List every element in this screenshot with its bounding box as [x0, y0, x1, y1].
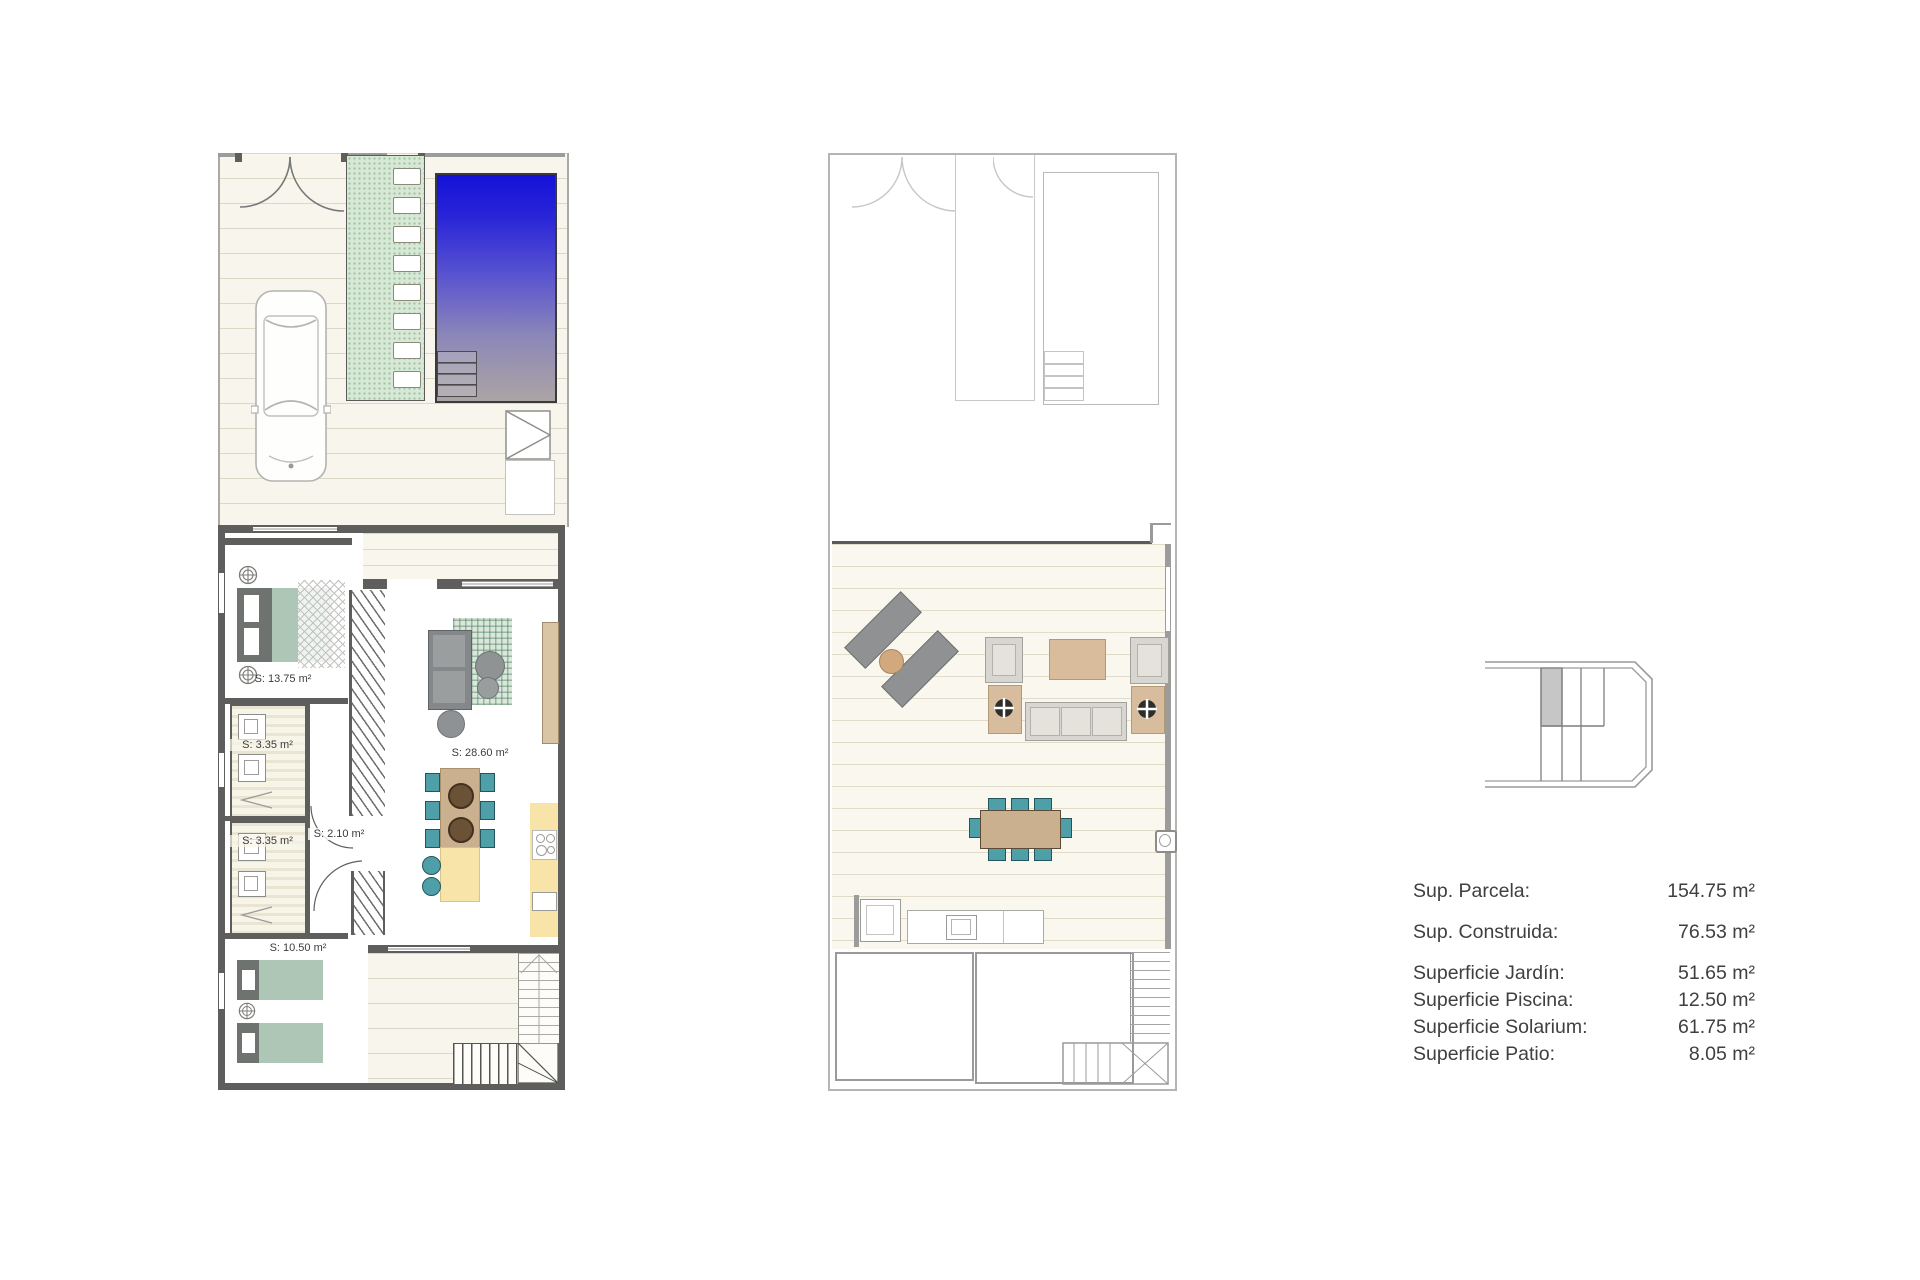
exterior-stairs-upper: [518, 953, 559, 1043]
kitchen-island: [440, 847, 480, 902]
stepping-stone: [393, 284, 421, 301]
bed-throw: [298, 580, 345, 668]
room-label: S: 3.35 m²: [230, 739, 305, 751]
legend-label: Sup. Construida:: [1413, 919, 1558, 946]
parasol-base-icon: [1137, 699, 1157, 719]
window-dash: [219, 753, 224, 787]
solarium-parapet-step: [1150, 523, 1153, 543]
legend: Sup. Parcela: 154.75 m² Sup. Construida:…: [1413, 878, 1755, 1068]
stair-section-diagram: [1485, 660, 1675, 790]
legend-row: Sup. Parcela: 154.75 m²: [1413, 878, 1755, 905]
stepping-stone: [393, 371, 421, 388]
outdoor-sofa: [1025, 702, 1127, 741]
legend-label: Sup. Parcela:: [1413, 878, 1530, 905]
ghost-path-outline: [955, 155, 1035, 401]
dining-chair: [425, 801, 440, 820]
outdoor-dining-table: [980, 810, 1061, 849]
stove-icon: [532, 830, 557, 860]
legend-row: Superficie Solarium: 61.75 m²: [1413, 1014, 1755, 1041]
stepping-stone: [393, 197, 421, 214]
sink-icon: [532, 892, 557, 911]
kitchen-counter: [530, 803, 558, 937]
car-icon: [251, 288, 331, 486]
parasol-base-icon: [994, 698, 1014, 718]
stepping-stone: [393, 255, 421, 272]
tv-sideboard: [542, 622, 559, 744]
plate: [448, 783, 474, 809]
bed-pillow: [244, 595, 259, 622]
ghost-gate-arc-icon: [848, 157, 962, 221]
outdoor-kitchen-unit: [860, 899, 901, 942]
planter: [505, 460, 555, 515]
room-label: S: 13.75 m²: [243, 673, 323, 685]
bedroom-window: [253, 527, 337, 531]
ghost-stair-winder: [1062, 1042, 1169, 1085]
shower-tray-icon: [236, 790, 276, 814]
single-bed: [237, 960, 323, 1000]
stepping-stone: [393, 226, 421, 243]
floorplan-sheet: S: 13.75 m² S: 3.35 m² S: 3.35 m² S: 2: [0, 0, 1920, 1280]
stepping-stone: [393, 342, 421, 359]
armchair: [985, 637, 1023, 683]
living-window: [462, 581, 553, 587]
dining-table: [440, 768, 480, 849]
wall-lamp-icon: [238, 1002, 256, 1020]
double-bed: [237, 580, 345, 668]
pool: [435, 173, 557, 403]
dining-chair: [480, 773, 495, 792]
porch: [363, 533, 558, 579]
legend-label: Superficie Piscina:: [1413, 987, 1573, 1014]
exterior-stairs-lower: [453, 1043, 518, 1084]
plate: [448, 817, 474, 843]
legend-label: Superficie Patio:: [1413, 1041, 1555, 1068]
stepping-stone: [393, 313, 421, 330]
window-dash: [219, 973, 224, 1009]
legend-row: Superficie Jardín: 51.65 m²: [1413, 960, 1755, 987]
wall-lamp-icon: [238, 565, 258, 585]
solarium-deck: [832, 544, 1169, 949]
house-right-wall: [558, 527, 565, 1090]
drain-icon: [1155, 830, 1177, 853]
garden-path: [346, 155, 425, 401]
plot-wall: [421, 153, 565, 157]
room-label: S: 28.60 m²: [448, 747, 512, 759]
bar-stool: [422, 877, 441, 896]
outdoor-kitchen-counter: [907, 910, 1044, 944]
dining-chair: [480, 829, 495, 848]
shower-tray-icon: [236, 905, 276, 929]
ghost-room-outline: [835, 952, 974, 1081]
room-label: S: 2.10 m²: [308, 828, 370, 840]
house-bottom-wall: [218, 1083, 565, 1090]
room-label: S: 3.35 m²: [230, 835, 305, 847]
bed-pillow: [244, 628, 259, 655]
legend-value: 8.05 m²: [1689, 1041, 1755, 1068]
dining-chair: [425, 773, 440, 792]
staircase: [349, 590, 388, 816]
legend-row: Superficie Piscina: 12.50 m²: [1413, 987, 1755, 1014]
sofa: [428, 630, 472, 710]
solarium-plan: [828, 153, 1177, 1091]
stepping-stone: [393, 168, 421, 185]
sink-icon: [238, 754, 266, 782]
pool-steps: [437, 351, 475, 397]
entry-door-opening: [387, 579, 437, 589]
dining-chair: [480, 801, 495, 820]
entrance-gate-arc-icon: [236, 157, 350, 221]
outdoor-shower-icon: [505, 410, 551, 460]
bedroom-top-wall: [225, 538, 352, 545]
bathroom-1: [230, 704, 309, 820]
pouf: [477, 677, 499, 699]
solarium-parapet-step: [1150, 523, 1171, 525]
legend-row: Superficie Patio: 8.05 m²: [1413, 1041, 1755, 1068]
legend-value: 51.65 m²: [1678, 960, 1755, 987]
toilet-icon: [238, 871, 266, 897]
legend-value: 12.50 m²: [1678, 987, 1755, 1014]
wall-stub: [854, 895, 859, 947]
toilet-icon: [238, 714, 266, 740]
legend-value: 61.75 m²: [1678, 1014, 1755, 1041]
legend-value: 154.75 m²: [1667, 878, 1755, 905]
stair-break-line: [519, 953, 559, 1043]
single-bed: [237, 1023, 323, 1063]
legend-label: Superficie Jardín:: [1413, 960, 1565, 987]
ghost-pool-outline: [1043, 172, 1159, 405]
legend-row: Sup. Construida: 76.53 m²: [1413, 919, 1755, 946]
dining-chair: [425, 829, 440, 848]
side-table-round: [879, 649, 904, 674]
legend-label: Superficie Solarium:: [1413, 1014, 1588, 1041]
hall-door-arc-icon: [312, 853, 364, 913]
sink-icon: [946, 915, 977, 940]
pouf: [437, 710, 465, 738]
ghost-stairs: [1130, 952, 1170, 1042]
coffee-table: [1049, 639, 1106, 680]
stair-winder: [518, 1043, 558, 1083]
legend-value: 76.53 m²: [1678, 919, 1755, 946]
room-label: S: 10.50 m²: [258, 942, 338, 954]
window-dash: [1166, 567, 1170, 631]
sliding-door: [388, 947, 470, 951]
window-dash: [219, 573, 224, 613]
ground-floor-plan: S: 13.75 m² S: 3.35 m² S: 3.35 m² S: 2: [218, 153, 565, 1090]
bar-stool: [422, 856, 441, 875]
armchair: [1130, 637, 1169, 684]
